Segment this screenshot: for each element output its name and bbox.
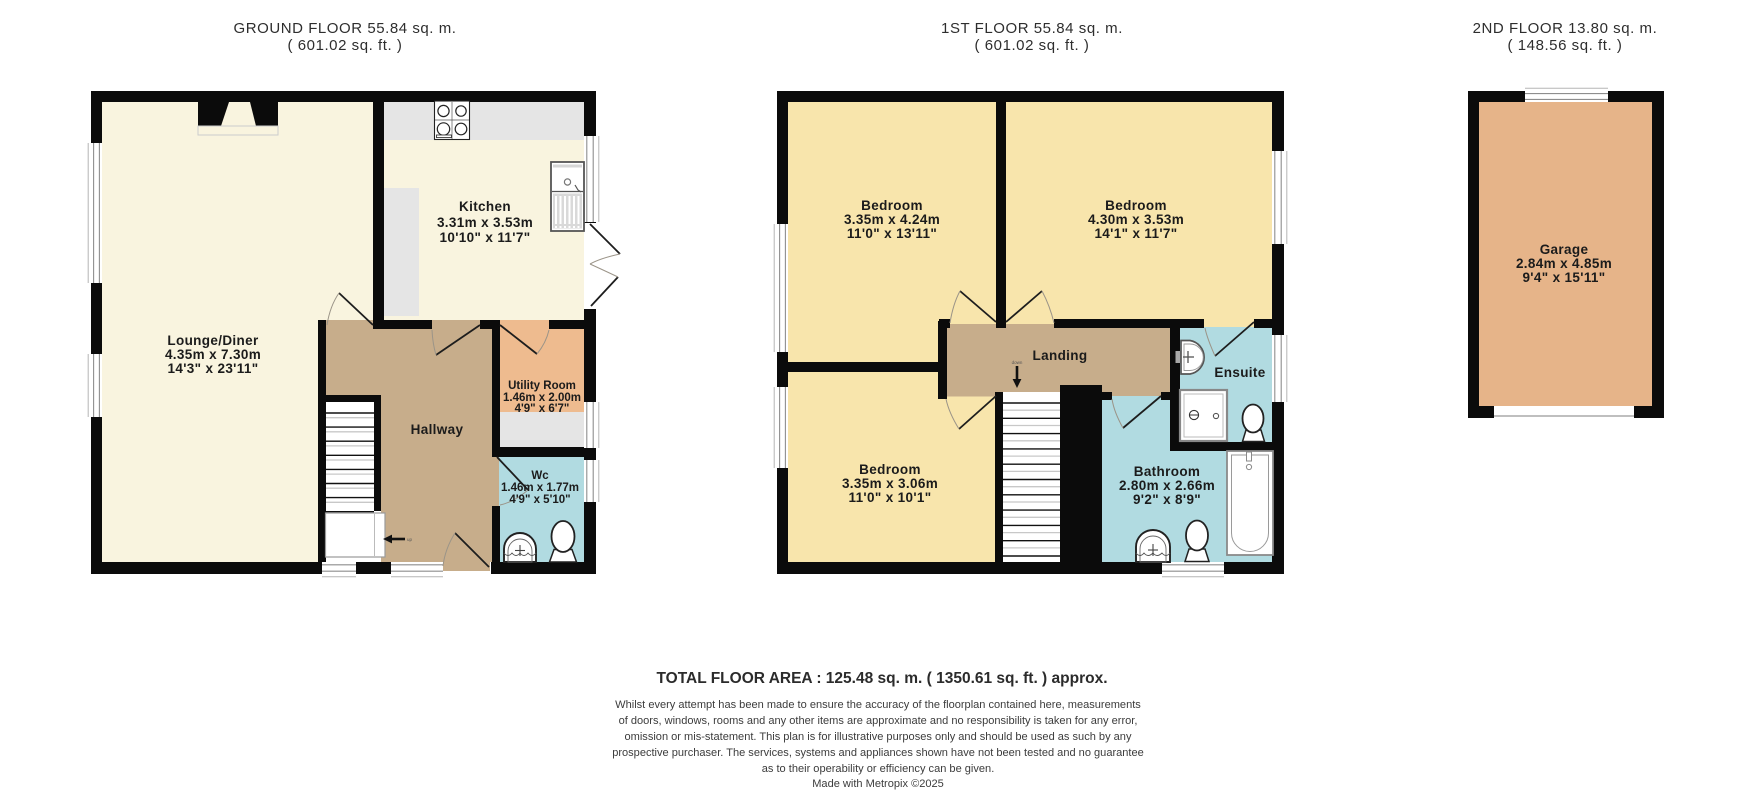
svg-text:4'9" x 6'7": 4'9" x 6'7" [515, 403, 570, 415]
svg-text:Ensuite: Ensuite [1214, 365, 1265, 380]
svg-text:prospective purchaser. The ser: prospective purchaser. The services, sys… [612, 747, 1144, 759]
svg-text:TOTAL FLOOR AREA : 125.48 sq.: TOTAL FLOOR AREA : 125.48 sq. m. ( 1350.… [656, 670, 1107, 687]
svg-text:9'4" x 15'11": 9'4" x 15'11" [1522, 270, 1605, 285]
svg-text:down: down [1012, 360, 1023, 365]
svg-text:Bedroom: Bedroom [1105, 198, 1167, 213]
svg-text:Whilst every attempt has been: Whilst every attempt has been made to en… [615, 699, 1141, 711]
svg-text:Lounge/Diner: Lounge/Diner [167, 333, 259, 348]
svg-text:Landing: Landing [1033, 348, 1088, 363]
svg-text:14'1" x 11'7": 14'1" x 11'7" [1094, 226, 1177, 241]
svg-text:4'9" x 5'10": 4'9" x 5'10" [509, 494, 570, 506]
svg-text:3.31m x 3.53m: 3.31m x 3.53m [437, 215, 533, 230]
svg-text:11'0" x 10'1": 11'0" x 10'1" [848, 490, 931, 505]
svg-text:( 601.02 sq. ft. ): ( 601.02 sq. ft. ) [975, 37, 1090, 54]
svg-text:Wc: Wc [531, 470, 549, 482]
svg-text:( 601.02 sq. ft. ): ( 601.02 sq. ft. ) [288, 37, 403, 54]
svg-text:2ND FLOOR 13.80 sq. m.: 2ND FLOOR 13.80 sq. m. [1473, 20, 1658, 37]
svg-text:GROUND FLOOR 55.84 sq. m.: GROUND FLOOR 55.84 sq. m. [234, 20, 457, 37]
svg-text:14'3" x 23'11": 14'3" x 23'11" [168, 361, 259, 376]
svg-text:( 148.56 sq. ft. ): ( 148.56 sq. ft. ) [1508, 37, 1623, 54]
svg-text:4.30m x 3.53m: 4.30m x 3.53m [1088, 212, 1184, 227]
svg-text:1ST FLOOR 55.84 sq. m.: 1ST FLOOR 55.84 sq. m. [941, 20, 1123, 37]
svg-text:9'2" x 8'9": 9'2" x 8'9" [1133, 492, 1201, 507]
svg-text:omission or mis-statement. Thi: omission or mis-statement. This plan is … [625, 731, 1132, 743]
svg-text:10'10" x 11'7": 10'10" x 11'7" [440, 230, 531, 245]
svg-text:2.84m x 4.85m: 2.84m x 4.85m [1516, 256, 1612, 271]
svg-text:Bedroom: Bedroom [859, 462, 921, 477]
svg-text:1.46m x 1.77m: 1.46m x 1.77m [501, 482, 579, 494]
svg-text:Bathroom: Bathroom [1134, 464, 1201, 479]
svg-text:3.35m x 3.06m: 3.35m x 3.06m [842, 476, 938, 491]
svg-text:2.80m x 2.66m: 2.80m x 2.66m [1119, 478, 1215, 493]
svg-text:4.35m x 7.30m: 4.35m x 7.30m [165, 347, 261, 362]
svg-text:Utility Room: Utility Room [508, 380, 576, 392]
svg-text:11'0" x 13'11": 11'0" x 13'11" [847, 226, 937, 241]
svg-text:of doors, windows, rooms and a: of doors, windows, rooms and any other i… [619, 715, 1138, 727]
svg-text:Hallway: Hallway [411, 422, 464, 437]
svg-text:Bedroom: Bedroom [861, 198, 923, 213]
svg-text:Kitchen: Kitchen [459, 199, 511, 214]
svg-text:Made with Metropix ©2025: Made with Metropix ©2025 [812, 778, 944, 790]
svg-text:Garage: Garage [1540, 242, 1589, 257]
svg-text:as to their operability or eff: as to their operability or efficiency ca… [762, 763, 995, 775]
svg-text:3.35m x 4.24m: 3.35m x 4.24m [844, 212, 940, 227]
svg-text:up: up [407, 537, 413, 542]
